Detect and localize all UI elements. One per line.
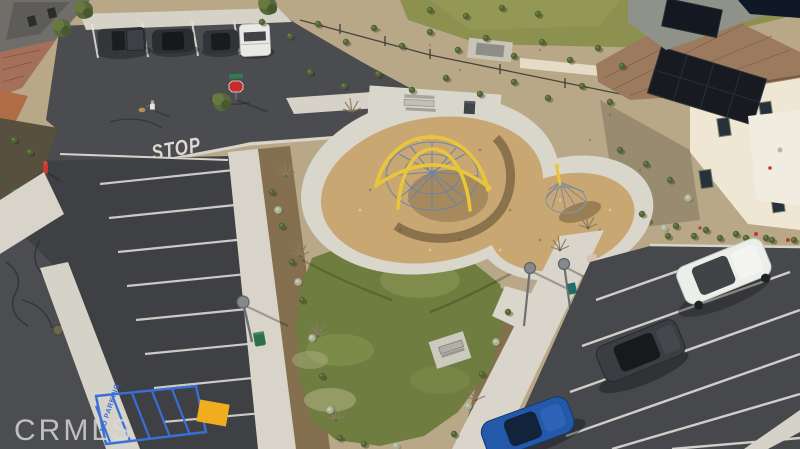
watermark-crmls: CRMLS bbox=[14, 414, 134, 447]
park-bench bbox=[404, 94, 437, 112]
aerial-photo: STOP bbox=[0, 0, 800, 449]
screenshot-root: STOP bbox=[0, 0, 800, 449]
trash-receptacle bbox=[464, 101, 476, 115]
patio bbox=[748, 110, 800, 206]
vehicle-suv-dark-top bbox=[200, 29, 243, 58]
vehicle-pickup-white bbox=[237, 23, 275, 60]
vehicle-pickup-dark bbox=[96, 27, 152, 61]
vehicle-sedan-dark bbox=[150, 28, 199, 58]
